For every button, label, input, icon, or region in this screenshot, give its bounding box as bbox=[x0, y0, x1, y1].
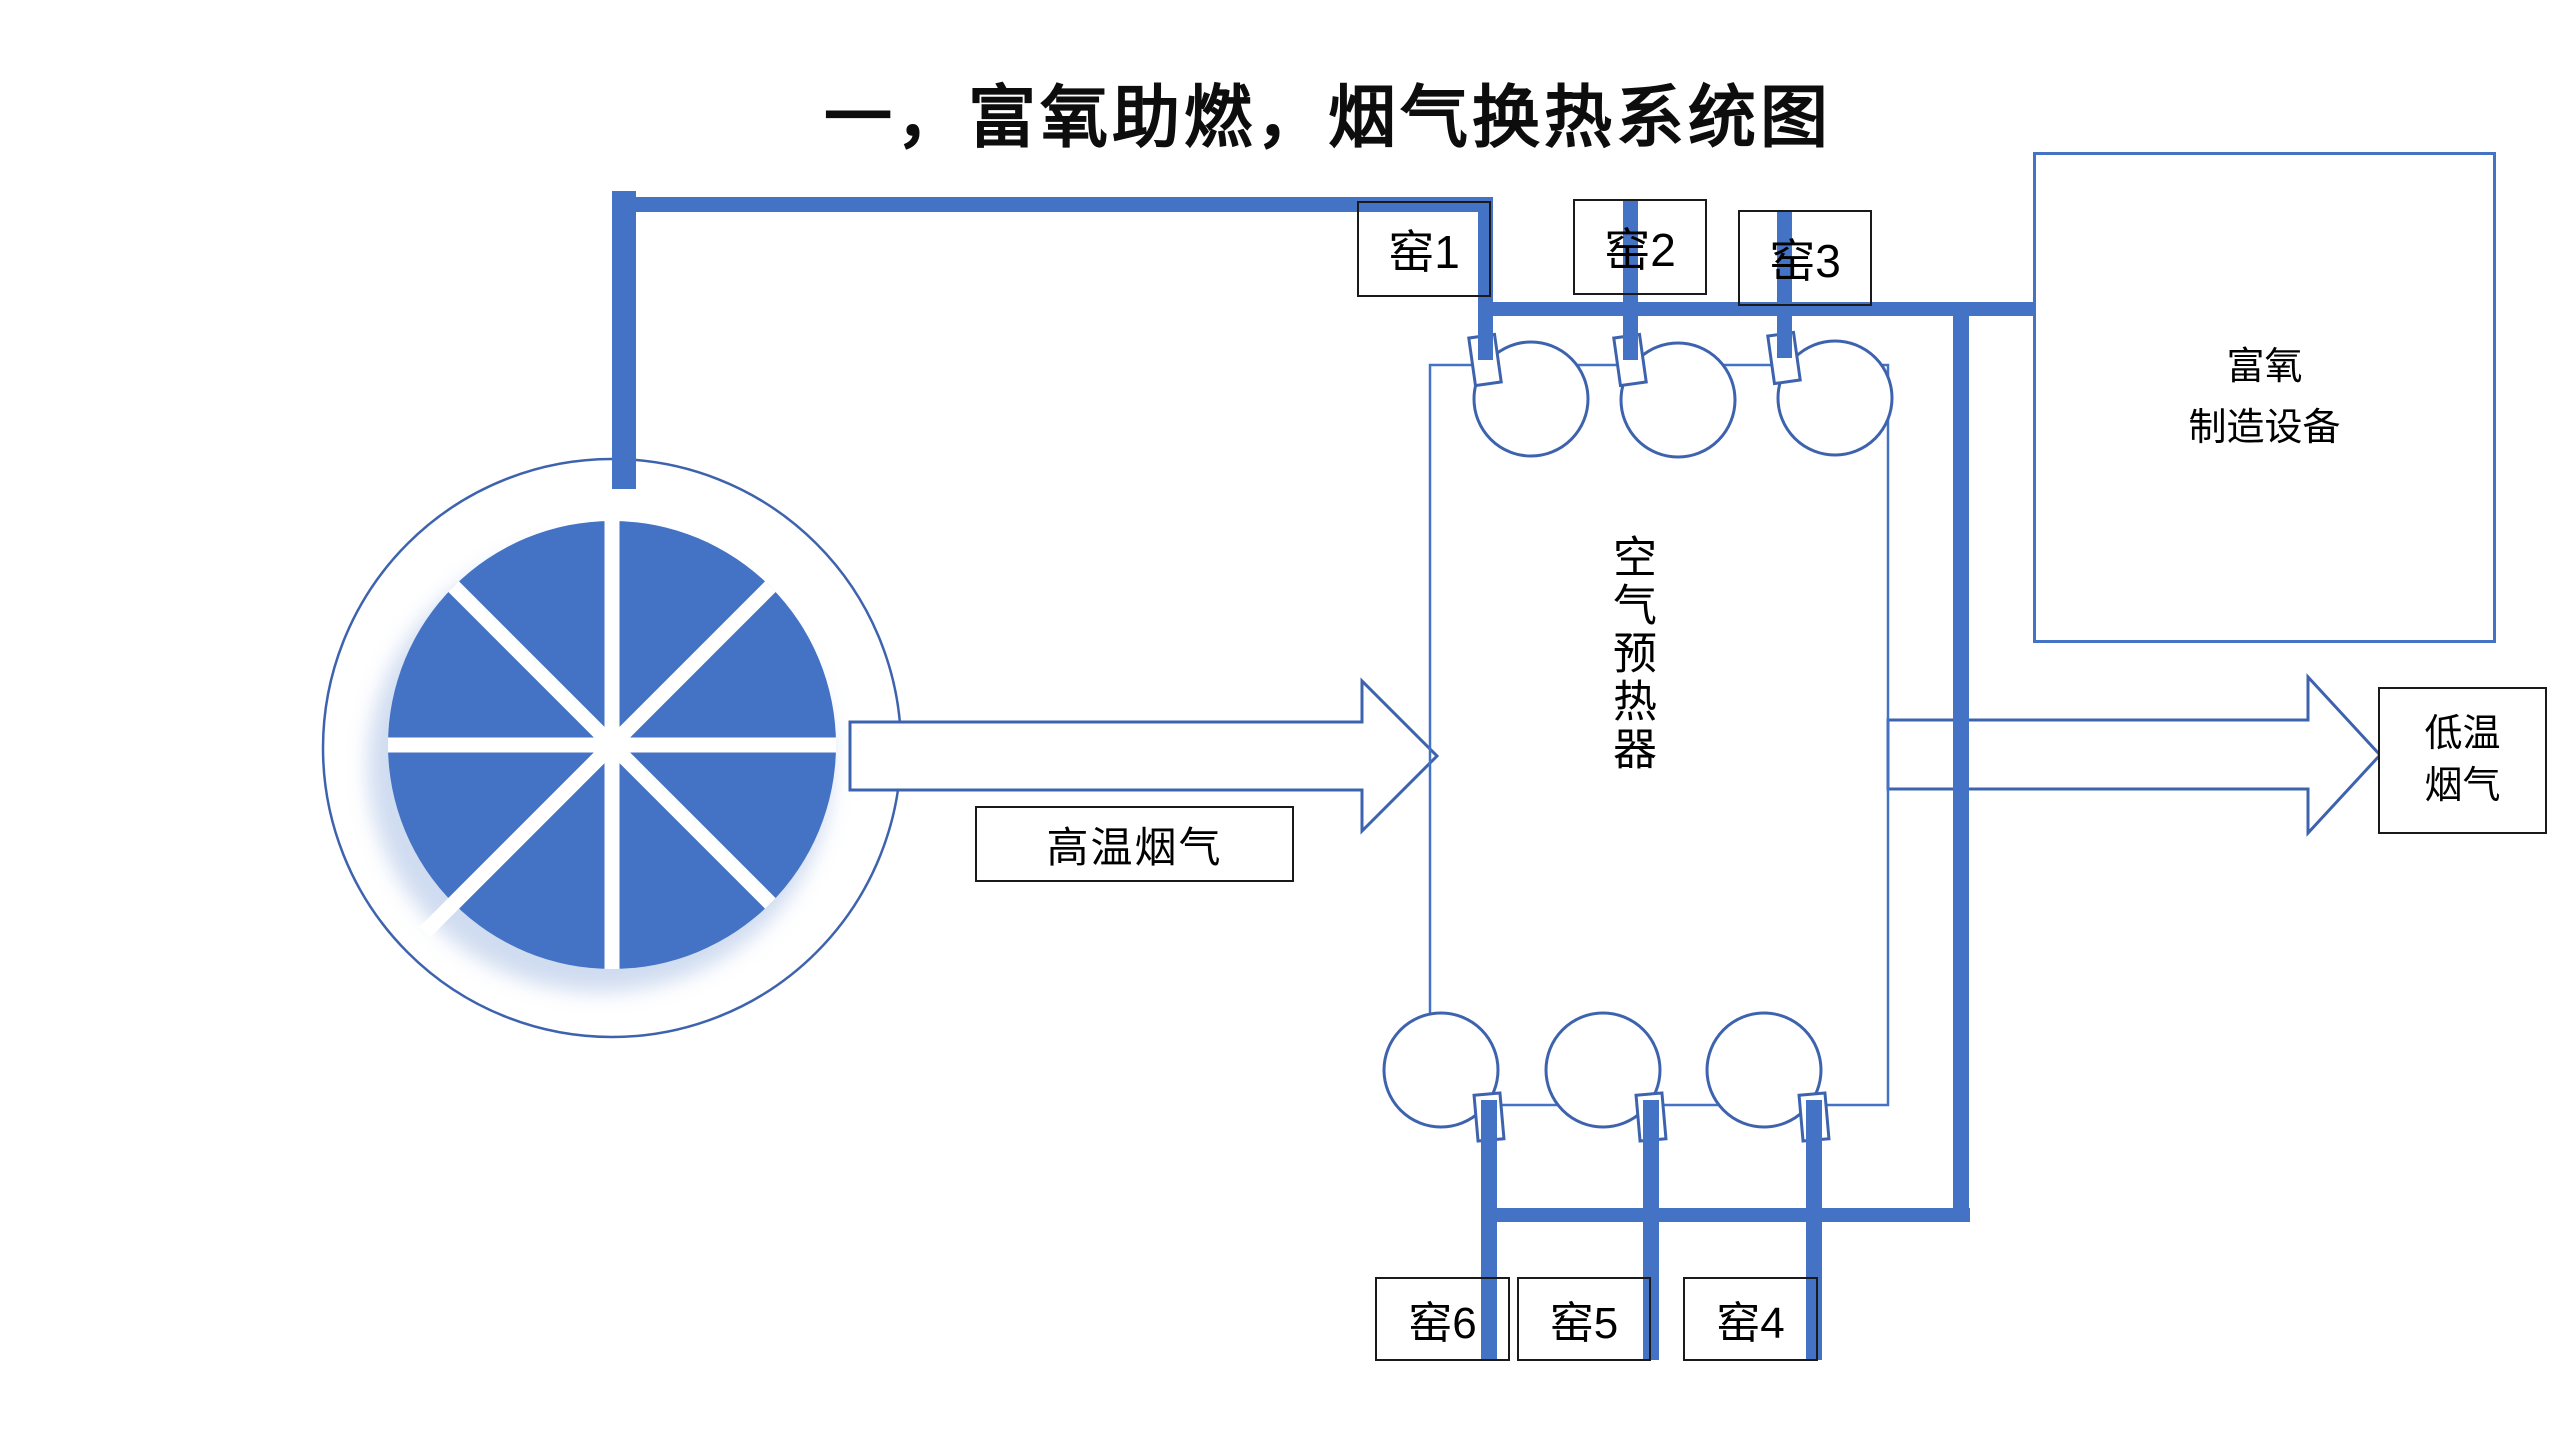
hot-flue-gas-label: 高温烟气 bbox=[1046, 814, 1222, 875]
diagram-canvas: 一，富氧助燃，烟气换热系统图 窑1 窑2 窑3 窑6 窑5 窑4 空气预热器 高… bbox=[0, 0, 2560, 1440]
pipe-wheel-riser bbox=[612, 191, 636, 489]
page-title: 一，富氧助燃，烟气换热系统图 bbox=[98, 62, 2558, 161]
preheater-label: 空气预热器 bbox=[1608, 534, 1662, 774]
cold-flue-gas-label-line2: 烟气 bbox=[2424, 761, 2500, 812]
pipe-right-downcomer bbox=[1953, 302, 1969, 1222]
bottom-fans bbox=[1384, 1013, 1829, 1141]
top-fans bbox=[1469, 332, 1892, 457]
kiln-4-label-box: 窑4 bbox=[1683, 1277, 1818, 1361]
cold-flue-gas-label-line1: 低温 bbox=[2424, 709, 2500, 760]
hot-flue-gas-label-box: 高温烟气 bbox=[975, 806, 1294, 882]
kiln-3-label: 窑3 bbox=[1769, 225, 1841, 291]
kiln-2-label-box: 窑2 bbox=[1573, 199, 1707, 295]
kiln-3-label-box: 窑3 bbox=[1738, 210, 1872, 306]
oxygen-unit-box: 富氧 制造设备 bbox=[2033, 152, 2496, 643]
kiln-6-label: 窑6 bbox=[1408, 1287, 1476, 1351]
wheel-spokes bbox=[388, 521, 836, 969]
kiln-2-label: 窑2 bbox=[1604, 214, 1676, 280]
kiln-4-label: 窑4 bbox=[1716, 1287, 1784, 1351]
kiln-6-label-box: 窑6 bbox=[1375, 1277, 1510, 1361]
kiln-1-label-box: 窑1 bbox=[1357, 201, 1491, 297]
kiln-5-label-box: 窑5 bbox=[1517, 1277, 1651, 1361]
kiln-1-label: 窑1 bbox=[1388, 216, 1460, 282]
cold-flue-gas-label-box: 低温 烟气 bbox=[2378, 687, 2547, 834]
pipe-bottom-run bbox=[1481, 1208, 1970, 1222]
oxygen-unit-label-line1: 富氧 bbox=[2226, 337, 2302, 398]
oxygen-unit-label-line2: 制造设备 bbox=[2188, 398, 2340, 459]
kiln-5-label: 窑5 bbox=[1550, 1287, 1618, 1351]
